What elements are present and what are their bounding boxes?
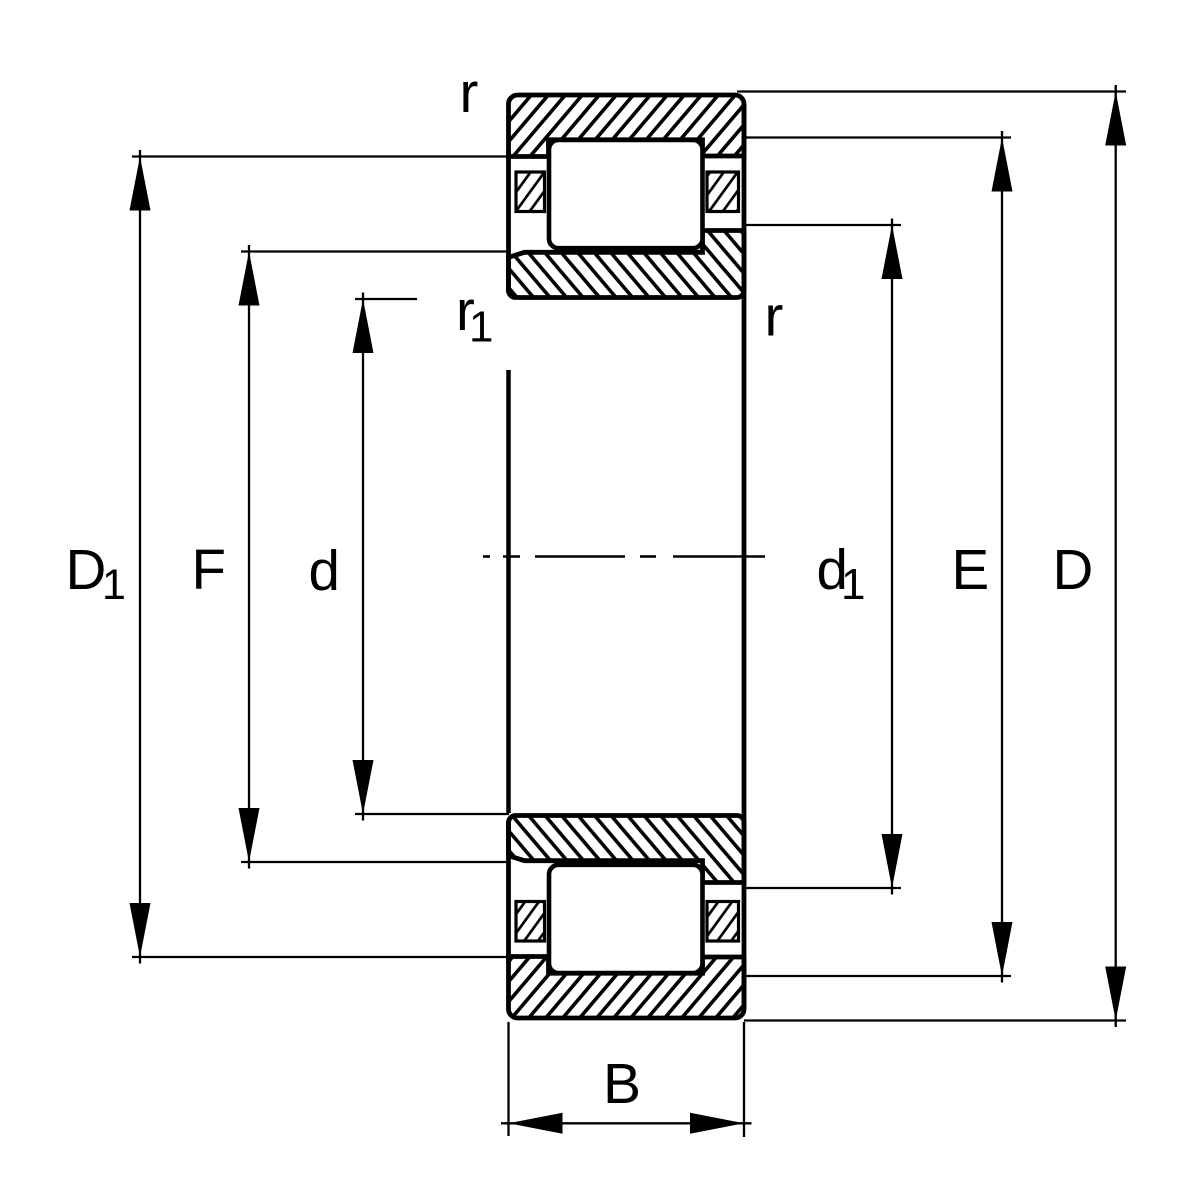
svg-text:F: F: [192, 538, 227, 601]
svg-text:D: D: [66, 538, 107, 601]
svg-text:B: B: [603, 1052, 641, 1116]
svg-text:1: 1: [841, 560, 865, 609]
svg-text:r: r: [460, 61, 479, 124]
svg-text:1: 1: [469, 303, 493, 352]
svg-text:r: r: [765, 285, 784, 348]
svg-text:D: D: [1053, 538, 1094, 601]
svg-text:E: E: [952, 538, 990, 601]
svg-text:d: d: [309, 539, 340, 602]
svg-text:1: 1: [102, 561, 126, 609]
